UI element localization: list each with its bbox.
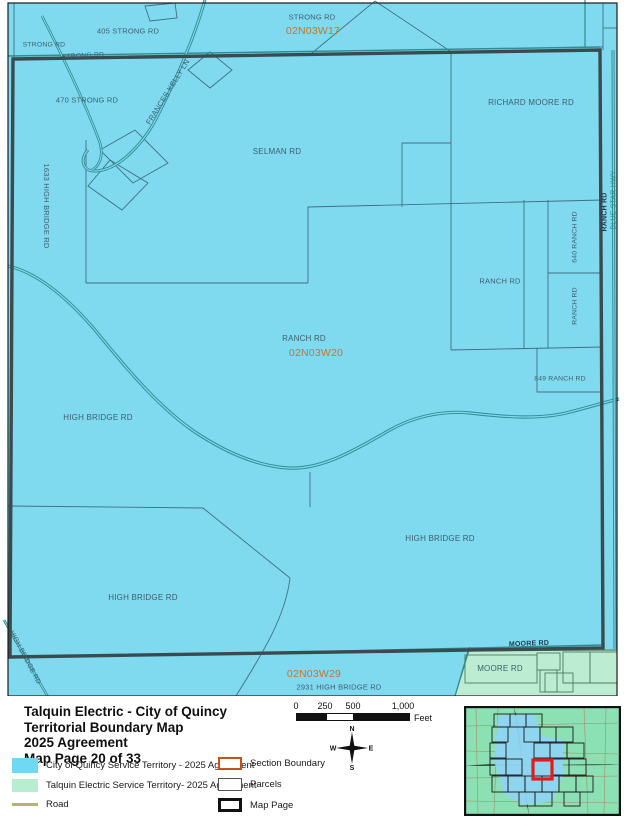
road-label: HIGH BRIDGE RD: [405, 535, 474, 543]
section-label: 02N03W29: [287, 669, 341, 680]
scale-segment: [354, 714, 409, 720]
section-label: 02N03W17: [286, 26, 340, 37]
scale-segment: [297, 714, 326, 720]
compass-west: W: [330, 746, 337, 753]
compass-north: N: [349, 726, 354, 733]
map-title-line: Territorial Boundary Map: [24, 720, 227, 736]
parcels-swatch: [218, 778, 242, 791]
road-label: SELMAN RD: [253, 148, 301, 156]
road-label: RICHARD MOORE RD: [488, 99, 574, 107]
road-label: HIGH BRIDGE RD: [63, 414, 132, 422]
scale-bar-graphic: [296, 713, 410, 721]
talquin-swatch: [12, 779, 38, 792]
scale-tick: 500: [345, 701, 360, 711]
road-label: RANCH RD: [602, 193, 609, 232]
legend-item-parcels: Parcels: [218, 778, 282, 791]
road-label: 405 STRONG RD: [97, 27, 159, 35]
legend-item-map-page: Map Page: [218, 798, 293, 812]
scale-tick: 0: [293, 701, 298, 711]
road-label: 470 STRONG RD: [56, 96, 118, 104]
road-label: MOORE RD: [509, 640, 549, 648]
legend-label: Road: [46, 799, 69, 810]
legend-item-section-boundary: Section Boundary: [218, 757, 325, 770]
talquin-territory-fill: [455, 650, 617, 696]
map-title-block: Talquin Electric - City of Quincy Territ…: [24, 704, 227, 766]
road-label: RANCH RD: [573, 287, 580, 324]
overview-inset-map: [464, 706, 621, 816]
scale-unit: Feet: [414, 713, 432, 723]
address-label: 640 RANCH RD: [573, 211, 580, 263]
compass-rose: N S W E: [330, 726, 374, 770]
map-document-page: STRONG RD 405 STRONG RD STRONG RD STRONG…: [0, 0, 624, 819]
legend-label: Parcels: [250, 779, 282, 790]
compass-east: E: [369, 746, 374, 753]
map-page-swatch: [218, 798, 242, 812]
road-label: STRONG RD: [289, 13, 336, 21]
map-title-line: 2025 Agreement: [24, 735, 227, 751]
map-canvas: STRONG RD 405 STRONG RD STRONG RD STRONG…: [0, 0, 624, 700]
address-label: 849 RANCH RD: [534, 377, 586, 384]
quincy-swatch: [12, 758, 38, 773]
compass-star: [336, 732, 368, 764]
section-label: 02N03W20: [289, 348, 343, 359]
scale-tick: 1,000: [392, 701, 415, 711]
road-label: RANCH RD: [282, 335, 326, 343]
scale-tick: 250: [317, 701, 332, 711]
section-boundary-swatch: [218, 757, 242, 770]
map-footer: Talquin Electric - City of Quincy Territ…: [0, 696, 624, 819]
road-label: STRONG RD: [23, 43, 66, 50]
compass-south: S: [350, 765, 355, 770]
map-title-line: Talquin Electric - City of Quincy: [24, 704, 227, 720]
legend-label: Section Boundary: [250, 758, 325, 769]
road-label: BLUE STAR HWY: [611, 170, 618, 229]
road-swatch: [12, 803, 38, 806]
road-label: HIGH BRIDGE RD: [108, 594, 177, 602]
legend-item-road: Road: [12, 799, 69, 810]
address-label: 1633 HIGH BRIDGE RD: [42, 163, 50, 248]
legend-label: Map Page: [250, 800, 293, 811]
road-label: RANCH RD: [479, 277, 520, 285]
scale-segment: [326, 714, 354, 720]
road-label: MOORE RD: [477, 665, 523, 673]
address-label: 2931 HIGH BRIDGE RD: [296, 683, 381, 691]
